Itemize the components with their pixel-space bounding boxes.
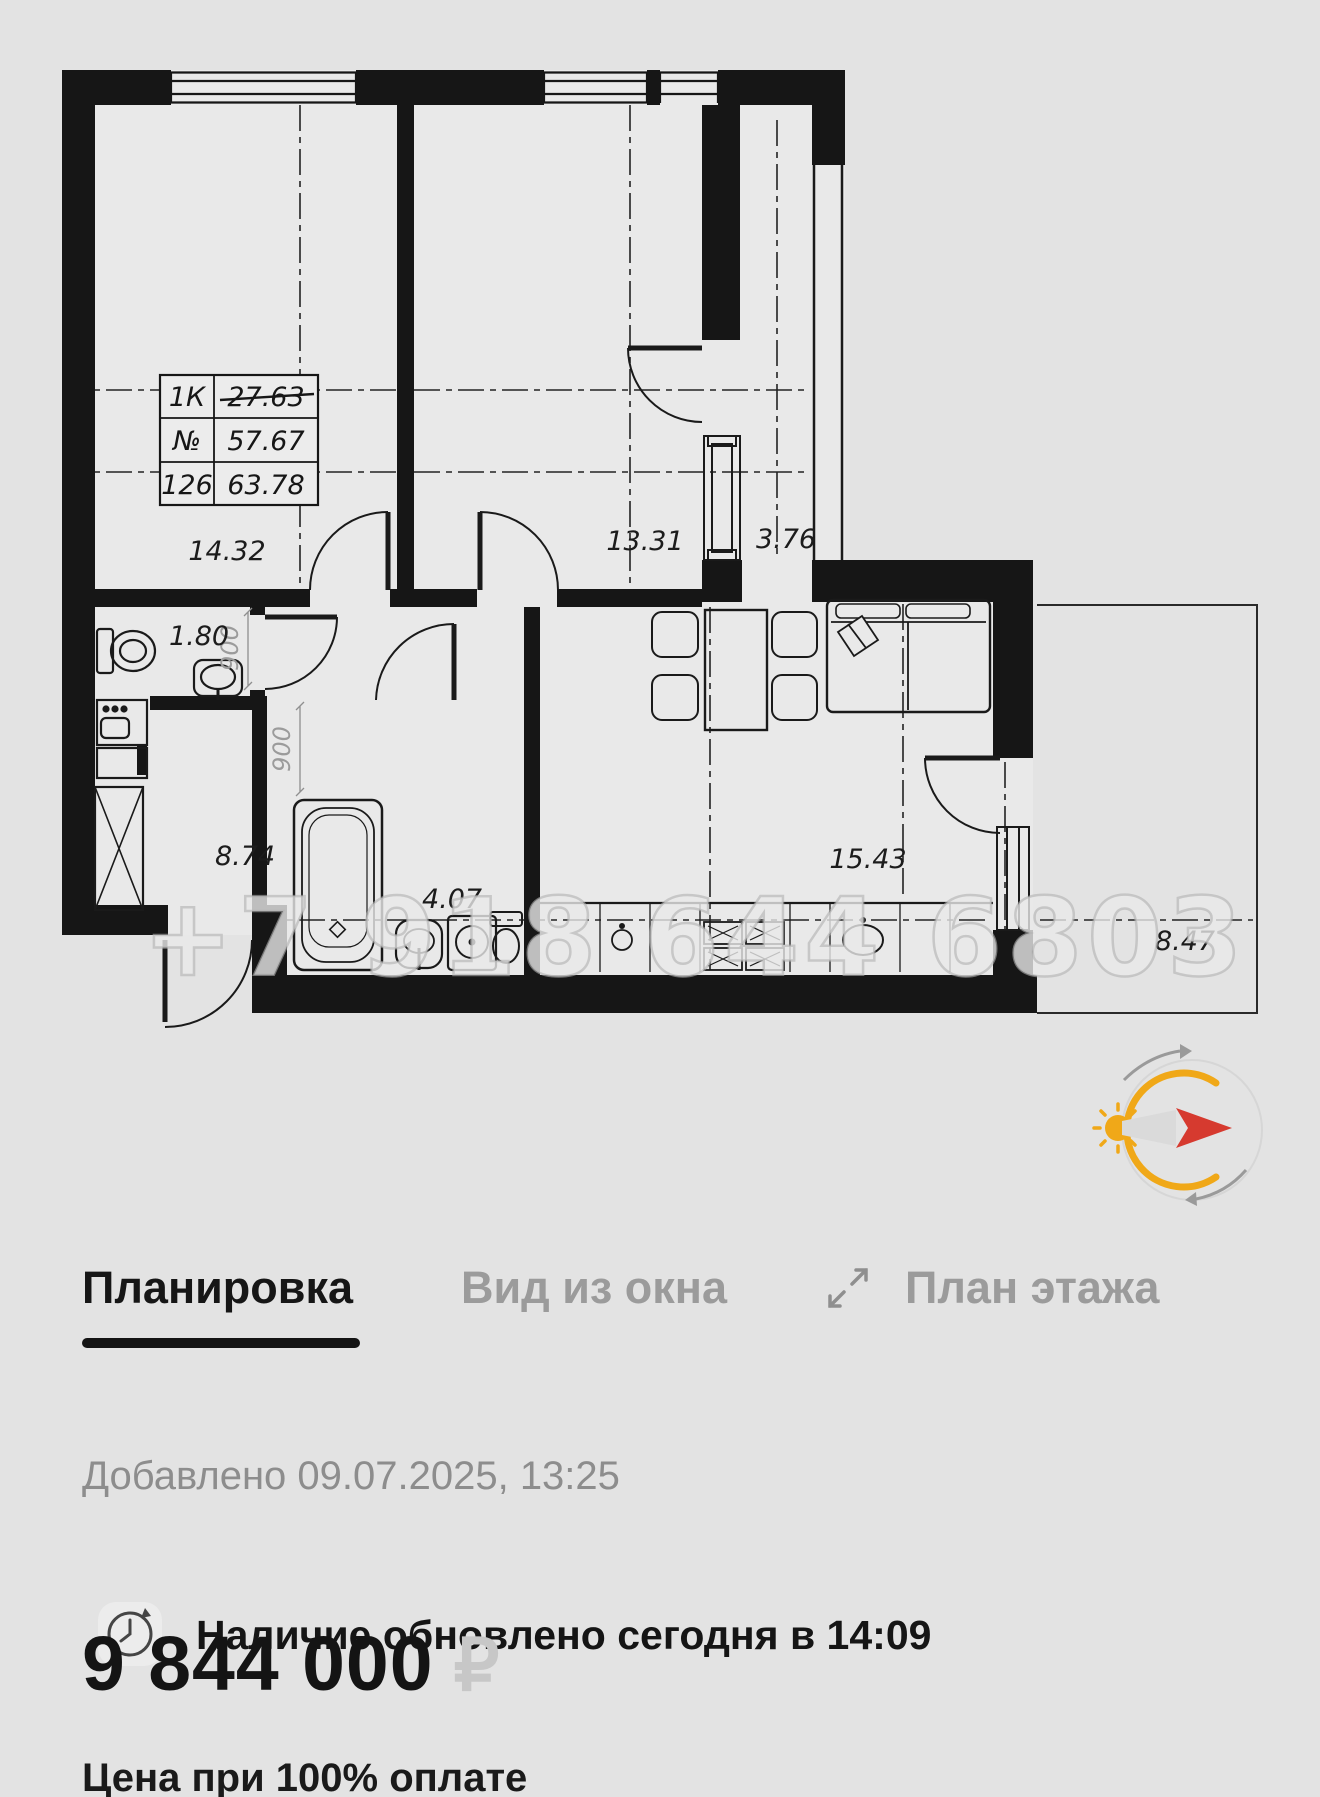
info-table: 1К № 126 27.63 57.67 63.78 xyxy=(160,375,318,505)
info-living-area: 57.67 xyxy=(227,426,304,457)
expand-icon[interactable] xyxy=(824,1264,872,1312)
tab-floor-plan[interactable]: План этажа xyxy=(905,1262,1159,1314)
price-amount: 9 844 000 xyxy=(82,1621,434,1707)
label-room2: 13.31 xyxy=(606,526,683,557)
direction-arrow-icon xyxy=(1176,1108,1232,1148)
floor-plan-image[interactable]: 900 900 1К № 126 27.63 57.67 63.78 14.32… xyxy=(0,0,1320,1210)
label-corridor: 3.76 xyxy=(756,524,816,555)
tab-layout[interactable]: Планировка xyxy=(82,1262,353,1314)
dim-900-2: 900 xyxy=(268,726,296,772)
ruble-sign: ₽ xyxy=(454,1626,500,1706)
added-date: Добавлено 09.07.2025, 13:25 xyxy=(82,1454,620,1499)
active-tab-underline xyxy=(82,1338,360,1348)
price-note: Цена при 100% оплате xyxy=(82,1756,527,1797)
info-number-sign: № xyxy=(171,426,201,457)
label-room1: 14.32 xyxy=(188,536,265,567)
label-wc: 1.80 xyxy=(169,621,229,652)
watermark-phone: +7 918 644 6803 xyxy=(143,876,1248,1001)
price-row: 9 844 000₽ xyxy=(82,1620,499,1709)
compass-sun-icon[interactable] xyxy=(1094,1044,1262,1206)
label-hall: 8.74 xyxy=(215,841,275,872)
tab-window-view[interactable]: Вид из окна xyxy=(461,1262,727,1314)
listing-page: 900 900 1К № 126 27.63 57.67 63.78 14.32… xyxy=(0,0,1320,1797)
info-type: 1К xyxy=(169,382,207,413)
info-apartment-number: 126 xyxy=(161,470,213,501)
info-total-area: 63.78 xyxy=(227,470,304,501)
label-kitchen-living: 15.43 xyxy=(829,844,906,875)
